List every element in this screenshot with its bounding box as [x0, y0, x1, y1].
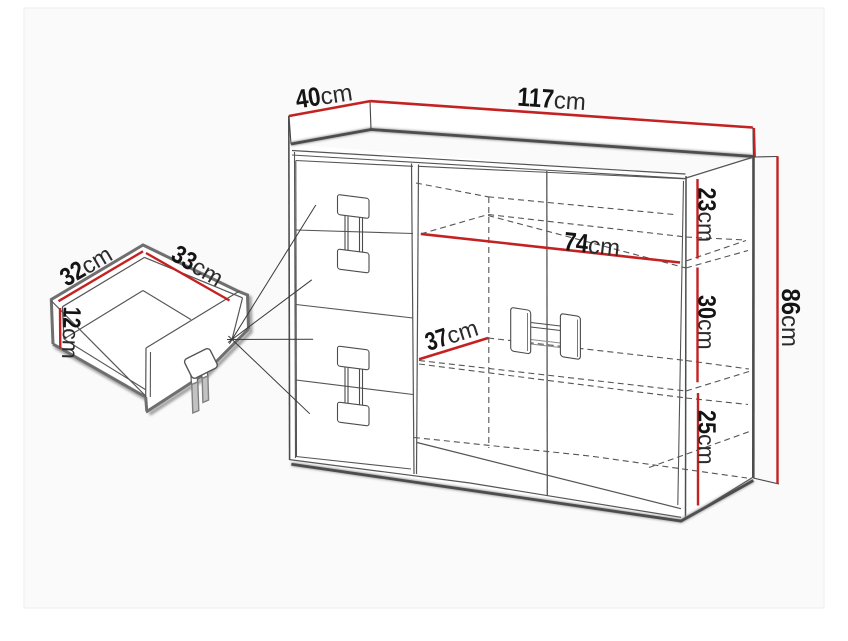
svg-text:30cm: 30cm — [693, 295, 721, 350]
svg-text:86cm: 86cm — [776, 289, 806, 348]
svg-text:23cm: 23cm — [693, 188, 721, 243]
svg-text:12cm: 12cm — [56, 306, 86, 359]
svg-text:25cm: 25cm — [693, 410, 721, 465]
